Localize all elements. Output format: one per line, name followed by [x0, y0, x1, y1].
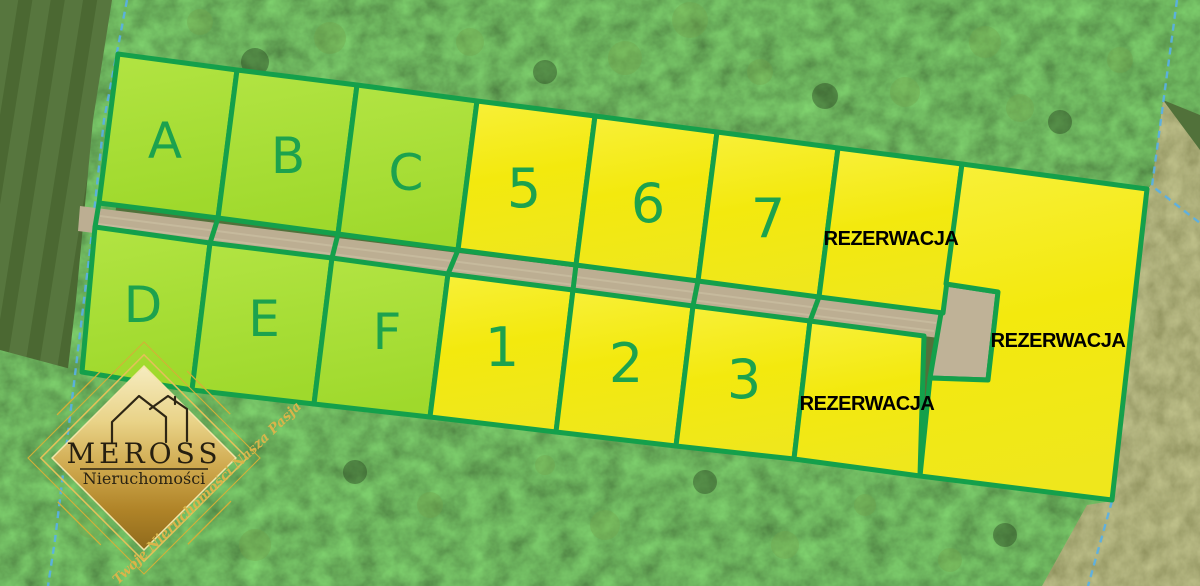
- parcel-E-label: E: [248, 290, 280, 348]
- parcel-A-label: A: [148, 112, 182, 170]
- reservation-label-top: REZERWACJA: [824, 228, 959, 250]
- parcel-F-label: F: [373, 303, 402, 361]
- parcel-B-label: B: [271, 127, 305, 185]
- parcel-3-label: 3: [727, 348, 761, 411]
- parcel-2-label: 2: [609, 332, 643, 395]
- parcel-D-label: D: [124, 276, 163, 334]
- parcel-5-label: 5: [507, 157, 541, 220]
- logo-subtitle-text: Nieruchomości: [83, 469, 206, 488]
- aerial-parcel-map: A B C 5 6 7 D E F 1 2 3 REZERWACJA REZER…: [0, 0, 1200, 586]
- logo-brand-text: MEROSS: [66, 437, 221, 470]
- reservation-label-right: REZERWACJA: [991, 330, 1126, 352]
- parcel-C-label: C: [389, 144, 424, 202]
- reservation-label-bottom: REZERWACJA: [800, 393, 935, 415]
- parcel-7-label: 7: [751, 187, 785, 250]
- parcel-6-label: 6: [631, 172, 665, 235]
- parcel-1-label: 1: [485, 316, 519, 379]
- plot-map-image: A B C 5 6 7 D E F 1 2 3 REZERWACJA REZER…: [0, 0, 1200, 586]
